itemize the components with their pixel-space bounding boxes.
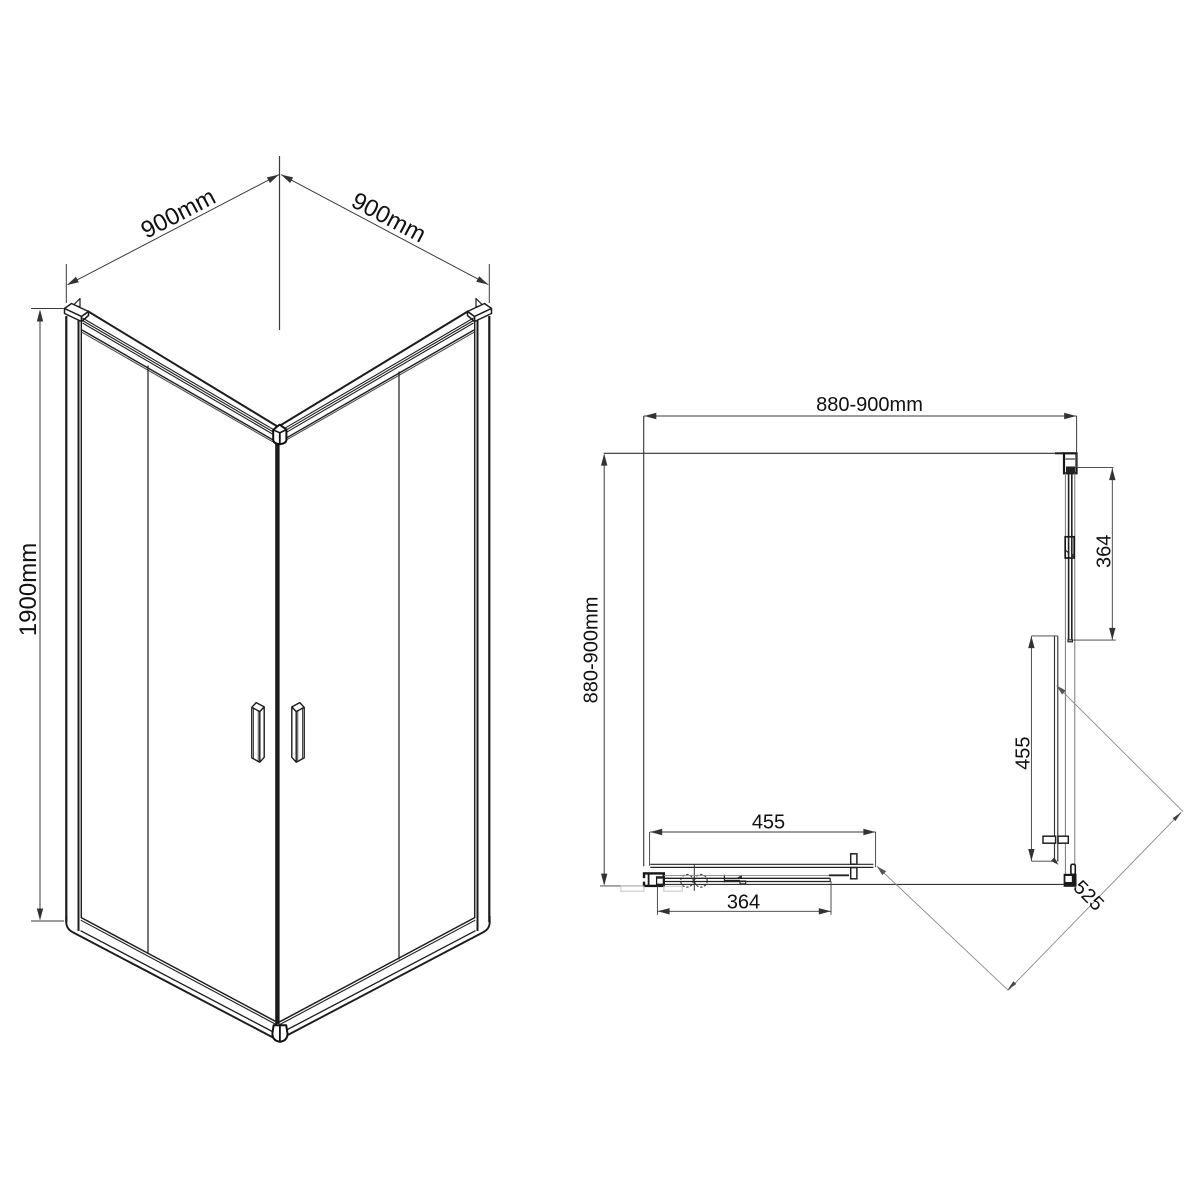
svg-text:900mm: 900mm xyxy=(347,187,430,248)
svg-text:455: 455 xyxy=(1013,737,1035,770)
svg-text:880-900mm: 880-900mm xyxy=(816,394,923,416)
svg-text:880-900mm: 880-900mm xyxy=(581,597,603,704)
svg-text:900mm: 900mm xyxy=(137,183,220,244)
svg-text:364: 364 xyxy=(1094,535,1116,568)
svg-text:1900mm: 1900mm xyxy=(15,543,42,636)
svg-text:455: 455 xyxy=(752,812,785,834)
svg-text:364: 364 xyxy=(727,891,760,913)
